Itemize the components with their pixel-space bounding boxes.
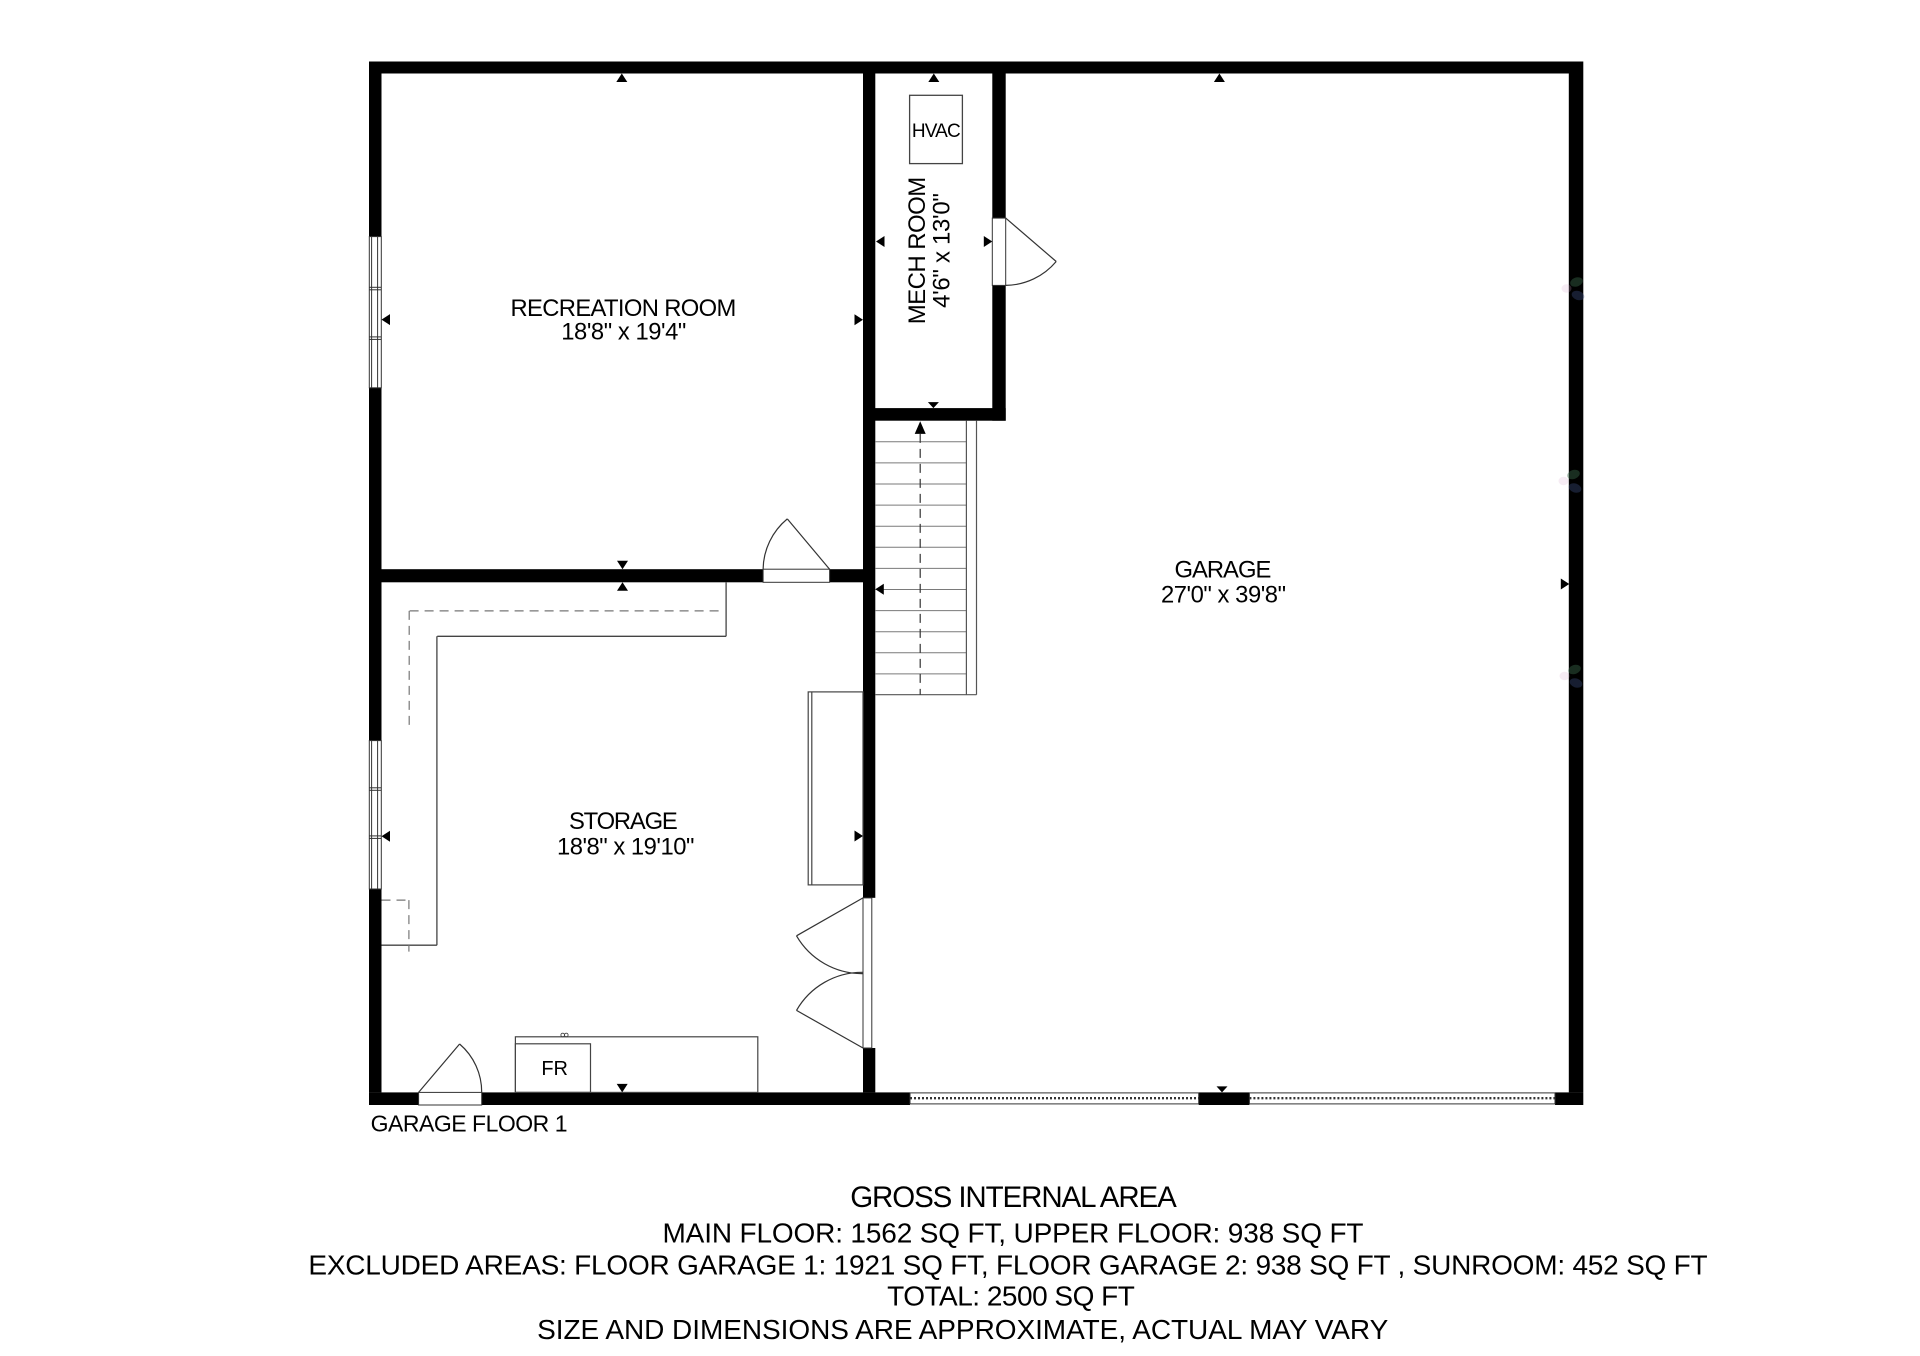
svg-text:MECH ROOM: MECH ROOM: [904, 177, 931, 325]
svg-text:STORAGE: STORAGE: [569, 808, 678, 835]
svg-text:4'6" x 13'0": 4'6" x 13'0": [928, 193, 955, 308]
svg-text:MAIN FLOOR: 1562 SQ FT, UPPER: MAIN FLOOR: 1562 SQ FT, UPPER FLOOR: 938…: [663, 1218, 1364, 1249]
svg-text:GROSS INTERNAL AREA: GROSS INTERNAL AREA: [850, 1181, 1177, 1214]
svg-text:HVAC: HVAC: [912, 121, 961, 142]
svg-text:TOTAL: 2500 SQ FT: TOTAL: 2500 SQ FT: [887, 1281, 1135, 1312]
svg-text:GARAGE: GARAGE: [1174, 557, 1271, 584]
svg-text:27'0" x 39'8": 27'0" x 39'8": [1161, 582, 1286, 609]
svg-text:SIZE AND DIMENSIONS ARE APPROX: SIZE AND DIMENSIONS ARE APPROXIMATE, ACT…: [537, 1314, 1388, 1345]
svg-text:GARAGE FLOOR 1: GARAGE FLOOR 1: [371, 1110, 568, 1136]
svg-text:FR: FR: [541, 1058, 568, 1080]
svg-text:18'8" x 19'4": 18'8" x 19'4": [561, 318, 686, 345]
svg-text:18'8" x 19'10": 18'8" x 19'10": [557, 834, 695, 861]
svg-text:EXCLUDED AREAS: FLOOR GARAGE 1: EXCLUDED AREAS: FLOOR GARAGE 1: 1921 SQ …: [308, 1250, 1707, 1281]
